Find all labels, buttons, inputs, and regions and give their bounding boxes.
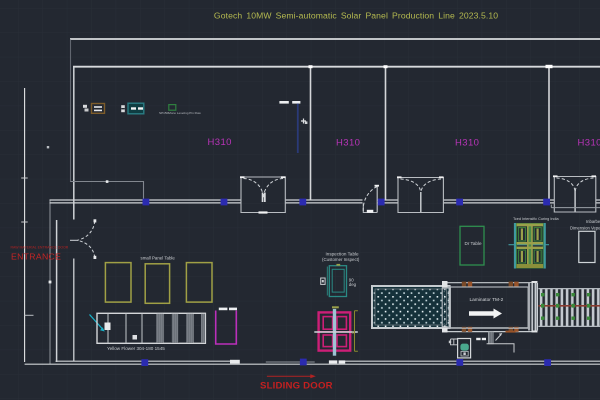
svg-text:deg: deg	[349, 282, 357, 287]
svg-text:B: B	[352, 330, 355, 335]
svg-text:H310: H310	[208, 137, 232, 148]
svg-text:Inspection Table: Inspection Table	[326, 252, 360, 257]
svg-text:Gotech 10MW Semi-automatic Sol: Gotech 10MW Semi-automatic Solar Panel P…	[214, 11, 498, 21]
svg-text:RAW MATERIAL ENTRANCE DOOR: RAW MATERIAL ENTRANCE DOOR	[11, 245, 69, 249]
svg-text:(Customer Inspect): (Customer Inspect)	[322, 257, 360, 262]
svg-text:Inbarber: Inbarber	[586, 219, 600, 224]
svg-text:Dr Table: Dr Table	[465, 241, 482, 246]
svg-text:SLIDING DOOR: SLIDING DOOR	[260, 381, 333, 392]
svg-text:Yellow Flower 304-180 1545: Yellow Flower 304-180 1545	[107, 346, 165, 351]
svg-text:Laminator TM-2: Laminator TM-2	[470, 297, 504, 303]
svg-text:H310: H310	[455, 138, 479, 149]
svg-text:Dimension Veperon: Dimension Veperon	[570, 226, 600, 231]
svg-text:SP150Mono Leveling Pin Row: SP150Mono Leveling Pin Row	[159, 111, 202, 115]
svg-text:small Panel Table: small Panel Table	[141, 256, 176, 261]
svg-text:H310: H310	[578, 138, 600, 149]
svg-text:H310: H310	[336, 138, 360, 149]
svg-text:ENTRANCE: ENTRANCE	[11, 252, 61, 262]
svg-text:Tced Intensific Curing India: Tced Intensific Curing India	[513, 217, 559, 221]
